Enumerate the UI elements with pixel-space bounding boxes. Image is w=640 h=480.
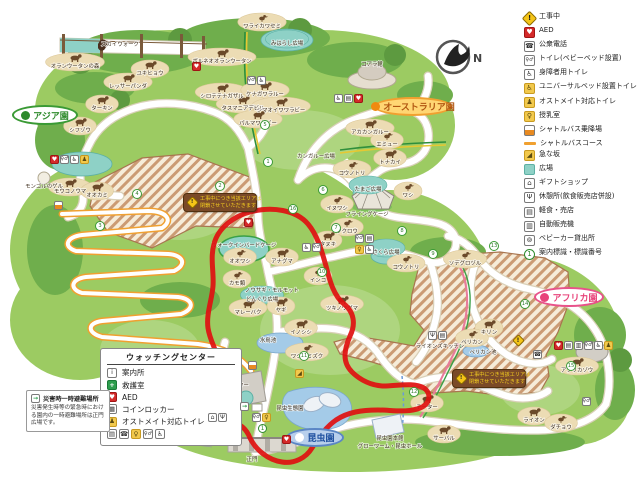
map-label: シマオイワワラビー (257, 106, 306, 114)
map-label: ライオンズキッチン (416, 342, 464, 350)
map-label: みはらし広場 (271, 39, 304, 47)
legend-item-label: 授乳室 (539, 111, 560, 119)
aed-icon: ♥ (282, 435, 291, 444)
facility-icon-cluster: → (240, 402, 249, 411)
facility-icon-cluster: ♥♀♂♿♟ (50, 155, 89, 164)
toilet-icon: ♀♂ (312, 243, 321, 252)
rest-icon: Ψ (428, 331, 437, 340)
facility-icon-cluster: ♀♂♿ (247, 76, 266, 85)
legend-item: ♥AED (524, 26, 638, 38)
watching-center-item: ♥AED (107, 392, 235, 402)
slope-icon: ◢ (295, 369, 304, 378)
legend-item: ▤軽食・売店 (524, 206, 638, 218)
legend-item: ▥自動販売機 (524, 220, 638, 232)
map-label: オランウータンの森 (51, 62, 100, 70)
facility-icon-cluster: ♀♂♀ (252, 413, 271, 422)
facility-icon-cluster: ♀♂ (582, 397, 591, 406)
legend-item-label: オストメイト対応トイレ (539, 97, 616, 105)
facility-icon-cluster: ♥ (192, 62, 201, 71)
legend-item: ♿身障者用トイレ (524, 68, 638, 80)
watching-center-item: +救護室 (107, 380, 235, 391)
disaster-title-row: → 災害時一時避難場所 (31, 394, 105, 403)
compass: N (437, 41, 482, 73)
map-legend: !工事中♥AED☎公衆電話♀♂トイレ(ベビーベッド設置)♿身障者用トイレ♿ユニバ… (524, 12, 638, 262)
area-label-pink: アフリカ園 (534, 287, 604, 307)
snack-icon: ▤ (438, 331, 447, 340)
watching-center-item-label: 救護室 (122, 380, 145, 391)
facility-icon-cluster: ♀♿ (355, 245, 374, 254)
ostomate-icon: ♟ (604, 341, 613, 350)
toilet-icon: ♀♂ (252, 413, 261, 422)
sign-number-marker: 16 (288, 204, 298, 214)
aed-icon: ♥ (50, 155, 59, 164)
wheelchair-icon: ♿ (257, 76, 266, 85)
bus-icon (248, 361, 257, 370)
map-label: ウォークインバードケージ (212, 241, 277, 249)
map-label: フライングケージ (345, 210, 389, 218)
map-label: カモ類 (229, 279, 246, 287)
area-label-blue: 昆虫園 (286, 428, 344, 447)
aed-icon: ♥ (354, 94, 363, 103)
facility-icon-cluster: ! (514, 336, 523, 345)
legend-item: ⊚ベビーカー貸出所 (524, 234, 638, 246)
map-label: ソデグロヅル (449, 259, 482, 267)
sign-number-marker: 3 (95, 221, 105, 231)
legend-item-label: AED (539, 26, 554, 34)
watching-center-item-label: AED (122, 393, 138, 402)
toilet-icon: ♀♂ (584, 341, 593, 350)
sign-number-marker: 11 (299, 351, 309, 361)
snack-icon: ▤ (365, 234, 374, 243)
sign-number-marker: 7 (331, 223, 341, 233)
signnum-icon: 1 (524, 249, 535, 260)
map-label: エミュー (376, 141, 398, 148)
facility-icon-cluster: ♥▤▥♀♂♿♟ (554, 341, 613, 350)
nursing-icon: ♀ (262, 413, 271, 422)
sign-number-marker: 5 (260, 120, 270, 130)
phone-icon: ☎ (119, 429, 129, 439)
slope-icon: ◢ (524, 150, 535, 161)
sign-number-marker: 9 (428, 249, 438, 259)
sign-number-marker: 1 (263, 157, 273, 167)
bus-icon (54, 201, 63, 210)
construction-sign-text: 工事中につき当該エリアは閉鎖させていただきます (200, 196, 261, 209)
rest-icon: Ψ (218, 413, 227, 422)
map-label: グローワーム・昆虫ホール (358, 442, 423, 450)
legend-item: ♟オストメイト対応トイレ (524, 97, 638, 109)
area-dot-icon (295, 433, 304, 442)
toilet-icon: ♀♂ (355, 234, 364, 243)
toilet-icon: ♀♂ (524, 55, 535, 66)
legend-item-label: 案内標識・標識番号 (539, 248, 602, 256)
legend-item: シャトルバス乗降場 (524, 125, 638, 137)
legend-item-label: 身障者用トイレ (539, 68, 588, 76)
aid-icon: + (107, 380, 117, 390)
map-label: ライオン (523, 417, 545, 424)
disaster-panel: → 災害時一時避難場所 災害発生時等の緊急時における園内の一時避難場所は正門広場… (26, 390, 110, 432)
facility-icon-cluster: ♥ (244, 218, 253, 227)
map-label: ワライカワセミ (243, 23, 281, 30)
toilet-icon: ♀♂ (247, 76, 256, 85)
map-label: ヤギ (276, 307, 287, 314)
legend-item-label: ベビーカー貸出所 (539, 234, 595, 242)
construction-icon: ! (186, 196, 199, 209)
legend-item: Ψ休憩所(飲食販売店併設) (524, 192, 638, 204)
map-label: ペリカン (461, 339, 483, 346)
area-name: アジア園 (33, 109, 69, 122)
map-label: ダチョウ (550, 423, 572, 431)
stroller-icon: ⊚ (524, 235, 535, 246)
aed-icon: ♥ (524, 27, 535, 38)
busline-icon (524, 142, 536, 145)
signnum-icon: 1 (258, 424, 267, 433)
area-name: 昆虫園 (307, 431, 334, 444)
map-label: 昆虫園本館 (377, 434, 404, 442)
area-label-orange: オーストラリア園 (374, 97, 452, 116)
map-label: シフゾウ (69, 126, 91, 134)
sign-number-marker: 15 (566, 361, 576, 371)
construction-sign: !工事中につき当該エリアは閉鎖させていただきます (452, 369, 526, 388)
map-label: 昆虫生態園 (277, 404, 304, 412)
area-dot-icon (21, 111, 30, 120)
wheelchair-icon: ♿ (302, 243, 311, 252)
aed-icon: ♥ (192, 62, 201, 71)
sign-number-marker: 13 (489, 241, 499, 251)
legend-item-label: 休憩所(飲食販売店併設) (539, 192, 614, 200)
ostomate-icon: ♟ (80, 155, 89, 164)
legend-item: 広場 (524, 164, 638, 176)
facility-icon-cluster: ♿▤♥ (334, 94, 363, 103)
map-label: どんぐり広場 (246, 295, 279, 303)
map-label: オオカミ (86, 192, 108, 199)
snack-icon: ▤ (524, 207, 535, 218)
construction-icon: ! (455, 372, 468, 385)
map-label: ケナガワラルー (246, 90, 284, 98)
wheelchair-icon: ♿ (155, 429, 165, 439)
facility-icon-cluster (54, 201, 63, 210)
nursing-icon: ♀ (131, 429, 141, 439)
map-label: カンガルー広場 (297, 152, 335, 160)
compass-n-label: N (473, 52, 482, 65)
plaza-icon (524, 164, 535, 175)
gift-icon: ⌂ (208, 413, 217, 422)
map-label: シロテテナガザル (200, 92, 244, 100)
ostomate-icon: ♟ (524, 97, 535, 108)
map-label: アカカンガルー (351, 128, 389, 136)
map-label: たまご広場 (355, 185, 382, 193)
map-label: ノウサギ・モルモット (245, 286, 299, 294)
watching-center-item: i案内所 (107, 367, 235, 378)
area-dot-icon (540, 293, 549, 302)
map-label: モンゴルのゲル (25, 182, 63, 190)
construction-icon: ! (512, 334, 525, 347)
sign-number-marker: 6 (318, 185, 328, 195)
map-label: オオワシ (229, 258, 251, 265)
aed-icon: ♥ (244, 218, 253, 227)
disaster-body: 災害発生時等の緊急時における園内の一時避難場所は正門広場です。 (31, 405, 105, 428)
gift-icon: ⌂ (524, 178, 535, 189)
legend-item: !工事中 (524, 12, 638, 24)
wheelchair-icon: ♿ (334, 94, 343, 103)
bus-icon (524, 125, 535, 136)
map-label: イノシシ (290, 330, 312, 336)
watching-center-title: ウォッチングセンター (107, 352, 235, 365)
legend-item: ⌂ギフトショップ (524, 178, 638, 190)
sign-number-marker: 8 (397, 226, 407, 236)
map-label: トナカイ (379, 159, 401, 166)
watching-center-panel: ウォッチングセンター i案内所+救護室♥AED▦コインロッカー♟オストメイト対応… (100, 348, 242, 446)
facility-icon-cluster: ♿♀♂ (302, 243, 321, 252)
map-label: 水鳥池 (260, 336, 277, 344)
construction-icon: ! (522, 10, 538, 26)
phone-icon: ☎ (524, 41, 535, 52)
watching-center-item-label: 案内所 (122, 367, 145, 378)
evacuation-icon: → (31, 394, 40, 403)
legend-item-label: ユニバーサルベッド設置トイレ (539, 82, 637, 90)
sign-number-marker: 4 (132, 189, 142, 199)
wheelchair-icon: ♿ (365, 245, 374, 254)
facility-icon-cluster: ♥ (282, 435, 291, 444)
ubed-icon: ♿ (524, 83, 535, 94)
wheelchair-icon: ♿ (594, 341, 603, 350)
toilet-icon: ♀♂ (143, 429, 153, 439)
legend-item: ♀授乳室 (524, 111, 638, 123)
legend-item-label: トイレ(ベビーベッド設置) (539, 54, 621, 62)
wheelchair-icon: ♿ (524, 69, 535, 80)
wheelchair-icon: ♿ (70, 155, 79, 164)
legend-item-label: 公衆電話 (539, 40, 567, 48)
legend-item: 1案内標識・標識番号 (524, 248, 638, 260)
map-label: ペリカン池 (470, 348, 498, 356)
map-label: アナグマ (271, 257, 292, 265)
area-name: オーストラリア園 (383, 100, 455, 113)
legend-item-label: 広場 (539, 164, 553, 172)
map-label: ボルネオオランウータン (192, 57, 251, 65)
legend-item-label: 工事中 (539, 12, 560, 20)
map-label: ワシ (403, 192, 414, 199)
snack-icon: ▤ (564, 341, 573, 350)
map-label: コアラ館 (361, 60, 383, 68)
facility-icon-cluster (248, 361, 257, 370)
watching-center-item-label: コインロッカー (122, 404, 175, 415)
toilet-icon: ♀♂ (60, 155, 69, 164)
map-label: サーバル (433, 435, 455, 442)
nursing-icon: ♀ (355, 245, 364, 254)
vending-icon: ▥ (574, 341, 583, 350)
map-label: コウノトリ (339, 169, 366, 177)
legend-item-label: シャトルバス乗降場 (539, 125, 602, 133)
facility-icon-cluster: ⌂Ψ (208, 413, 227, 422)
map-label: キリン (481, 330, 497, 336)
construction-sign-text: 工事中につき当該エリアは閉鎖させていただきます (469, 372, 530, 385)
map-label: レッサーパンダ (109, 82, 148, 90)
watching-center-item-label: オストメイト対応トイレ (122, 416, 205, 427)
legend-item-label: 自動販売機 (539, 220, 574, 228)
snack-icon: ▤ (344, 94, 353, 103)
info-icon: i (107, 368, 117, 378)
map-label: ターキン (91, 104, 112, 112)
legend-item-label: 軽食・売店 (539, 206, 574, 214)
map-label: さくら広場 (373, 248, 401, 256)
area-label-green: アジア園 (12, 105, 78, 125)
phone-icon: ☎ (533, 350, 542, 359)
rest-icon: Ψ (524, 192, 535, 203)
zoo-map-canvas: N オランウータンの森スカイウォークユキヒョウレッサーパンダターキンシフゾウボル… (0, 0, 640, 480)
map-label: パルマワラビー (239, 119, 277, 127)
watching-center-icon-row: ▤☎♀♀♂♿ (107, 429, 235, 439)
disaster-title: 災害時一時避難場所 (43, 394, 99, 403)
map-label: 正門 (247, 456, 258, 463)
sign-number-marker: 10 (317, 267, 327, 277)
legend-item: ◢急な坂 (524, 150, 638, 162)
toilet-icon: ♀♂ (582, 397, 591, 406)
evac-icon: → (240, 402, 249, 411)
sign-number-marker: 14 (520, 299, 530, 309)
legend-item-label: 急な坂 (539, 150, 560, 158)
legend-item: ♿ユニバーサルベッド設置トイレ (524, 82, 638, 94)
facility-icon-cluster: ☎ (533, 350, 542, 359)
legend-item: シャトルバスコース (524, 139, 638, 147)
map-label: マレーバク (235, 309, 262, 316)
sign-number-marker: 2 (215, 181, 225, 191)
legend-item: ☎公衆電話 (524, 40, 638, 52)
facility-icon-cluster: ◢ (295, 369, 304, 378)
vending-icon: ▥ (524, 221, 535, 232)
map-label: コウノトリ (393, 263, 420, 271)
legend-item: ♀♂トイレ(ベビーベッド設置) (524, 54, 638, 66)
legend-item-label: シャトルバスコース (540, 139, 603, 147)
area-dot-icon (371, 102, 380, 111)
map-label: イヌワシ (326, 205, 348, 212)
sign-number-marker: 12 (409, 387, 419, 397)
legend-item-label: ギフトショップ (539, 178, 588, 186)
map-label: ユキヒョウ (137, 69, 164, 77)
aed-icon: ♥ (554, 341, 563, 350)
facility-icon-cluster: ♀♂▤ (355, 234, 374, 243)
map-label: インコ (310, 277, 326, 284)
facility-icon-cluster: 1 (258, 424, 267, 433)
nursing-icon: ♀ (524, 111, 535, 122)
map-label: スカイウォーク (101, 40, 139, 48)
area-name: アフリカ園 (552, 291, 597, 304)
facility-icon-cluster: Ψ▤ (428, 331, 447, 340)
construction-sign: !工事中につき当該エリアは閉鎖させていただきます (183, 193, 257, 212)
